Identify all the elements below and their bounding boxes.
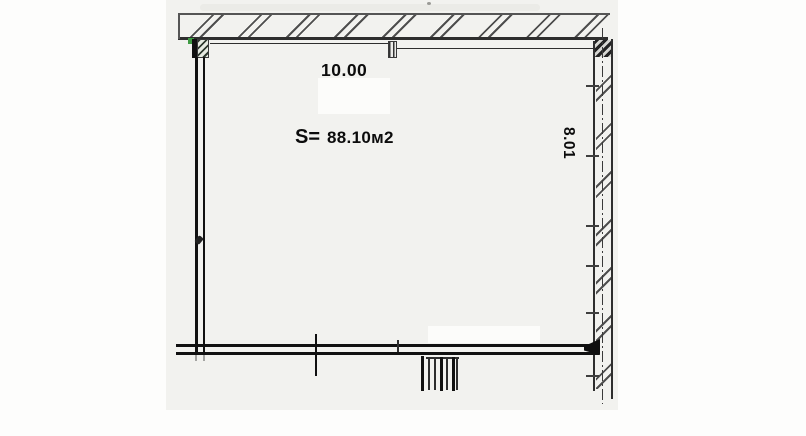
right-wall-inner-edge bbox=[593, 41, 595, 391]
whiteout-patch bbox=[318, 78, 390, 114]
right-wall-tick bbox=[586, 312, 599, 314]
whiteout-patch bbox=[428, 326, 540, 343]
bottom-wall-small-tick bbox=[397, 340, 399, 352]
radiator-fin bbox=[434, 358, 436, 390]
scan-speck bbox=[427, 2, 431, 5]
left-wall-stub bbox=[203, 355, 205, 361]
height-dimension-label: 8.01 bbox=[559, 127, 577, 159]
width-dimension-label: 10.00 bbox=[321, 60, 367, 81]
window-mullion bbox=[388, 41, 397, 58]
right-wall-centerline bbox=[602, 28, 604, 404]
left-wall-outer-line bbox=[195, 57, 198, 355]
left-wall-inner-line bbox=[203, 57, 206, 355]
radiator-fin bbox=[456, 358, 458, 390]
area-value: 88.10м2 bbox=[327, 128, 394, 148]
radiator-symbol bbox=[421, 356, 459, 392]
top-wall-inner-edge bbox=[178, 37, 608, 40]
pier-left-hatch bbox=[197, 39, 209, 58]
radiator-fin bbox=[452, 357, 455, 391]
floorplan-canvas: 10.00 S= 88.10м2 8.01 bbox=[0, 0, 806, 436]
top-wall-hatch bbox=[179, 15, 609, 37]
scan-paper-area bbox=[166, 0, 618, 410]
radiator-fin bbox=[440, 357, 443, 391]
right-wall-tick bbox=[586, 85, 599, 87]
left-wall-stub bbox=[195, 355, 197, 361]
bottom-wall-junction-tick bbox=[315, 334, 318, 376]
window-sill-right bbox=[397, 48, 594, 50]
radiator-fin bbox=[446, 358, 448, 390]
window-sill-left bbox=[210, 43, 388, 45]
right-wall-tick bbox=[586, 225, 599, 227]
bottom-wall-lower-line bbox=[176, 352, 599, 355]
right-wall-tick bbox=[586, 265, 599, 267]
area-label: S= 88.10м2 bbox=[295, 126, 394, 149]
area-prefix: S= bbox=[295, 126, 320, 149]
right-wall-tick bbox=[586, 155, 599, 157]
radiator-fin bbox=[421, 356, 424, 391]
scan-smudge bbox=[200, 4, 540, 11]
radiator-fin bbox=[428, 358, 430, 390]
right-wall-outer-edge bbox=[611, 39, 613, 399]
top-wall-left-cap bbox=[178, 13, 180, 39]
right-wall-tick bbox=[586, 375, 599, 377]
bottom-wall-upper-line bbox=[176, 344, 599, 347]
